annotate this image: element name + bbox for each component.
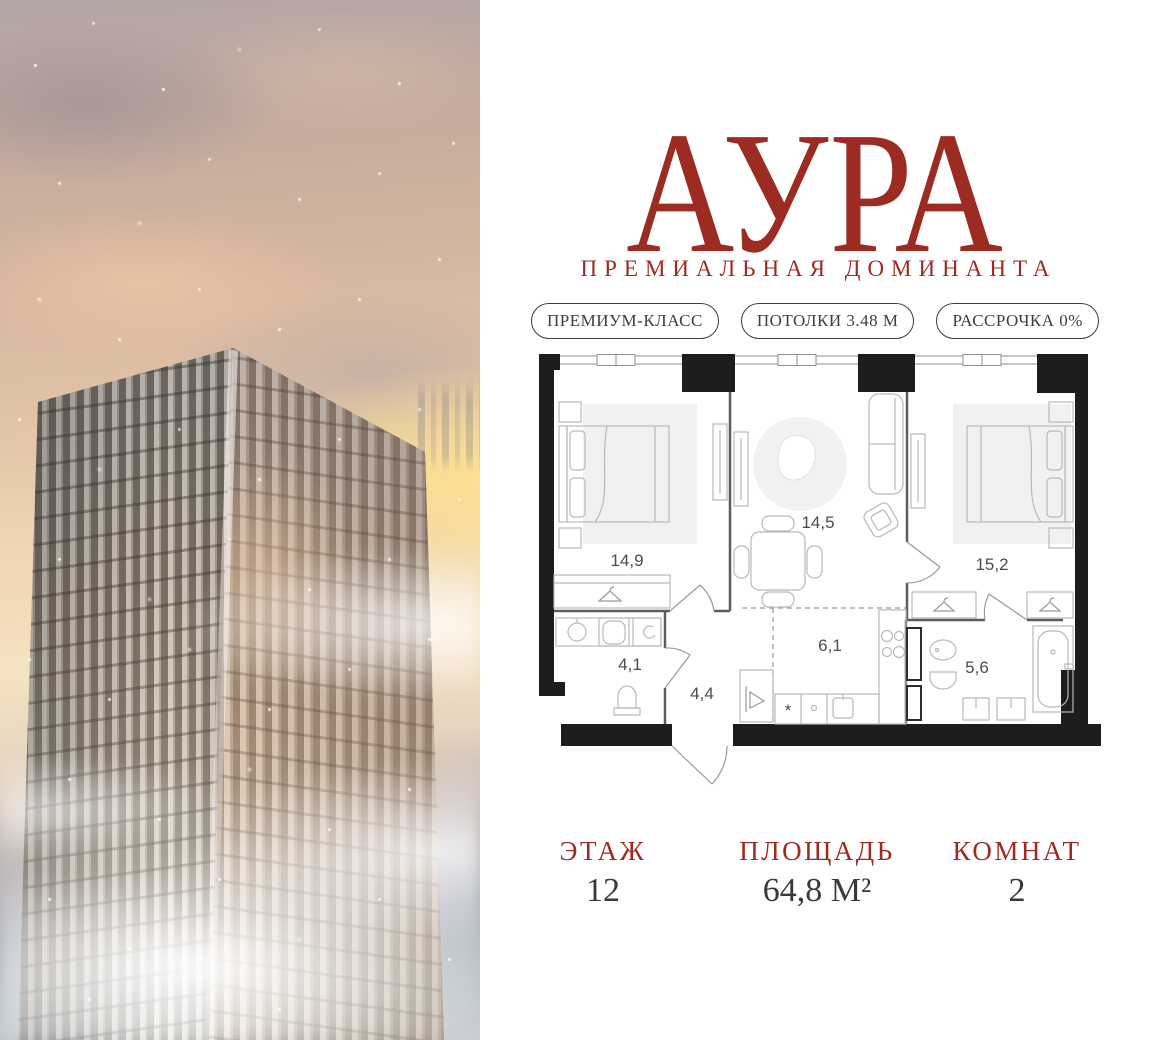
snowflakes xyxy=(0,0,3,3)
toilet xyxy=(930,672,956,689)
window-band xyxy=(554,355,1075,366)
boiler xyxy=(633,618,661,646)
apartment-stats: ЭТАЖ 12 ПЛОЩАДЬ 64,8 М² КОМНАТ 2 xyxy=(480,836,1150,931)
stat-area-label: ПЛОЩАДЬ xyxy=(739,836,894,867)
sink xyxy=(568,618,586,641)
tv-console xyxy=(911,434,925,508)
room-area-label: 4,4 xyxy=(690,684,714,703)
floor-plan: * xyxy=(537,352,1112,796)
kitchen-zone-dashed xyxy=(742,608,906,724)
door-bathroom-2 xyxy=(984,594,1027,620)
badge-premium-class: ПРЕМИУМ-КЛАСС xyxy=(531,303,719,339)
building-photo xyxy=(0,0,480,1040)
bidet xyxy=(930,640,956,660)
wardrobe xyxy=(554,575,670,608)
wardrobe xyxy=(1027,592,1073,618)
cabinet xyxy=(997,698,1025,720)
stat-rooms-value: 2 xyxy=(953,872,1082,910)
bathroom-2-fixtures xyxy=(907,626,1073,720)
room-area-label: 4,1 xyxy=(618,655,642,674)
door-bathroom-1 xyxy=(665,648,690,688)
window-frame-icon xyxy=(963,355,1001,366)
bathroom-1-fixtures xyxy=(556,618,661,715)
window-frame-icon xyxy=(778,355,816,366)
badge-ceiling-height: ПОТОЛКИ 3.48 М xyxy=(741,303,915,339)
dishwasher-icon: * xyxy=(785,701,792,720)
bathtub xyxy=(1033,626,1073,712)
hall-closet xyxy=(740,670,773,722)
room-area-label: 6,1 xyxy=(818,636,842,655)
stove xyxy=(882,631,905,658)
door-bedroom-1 xyxy=(670,585,714,611)
stat-area: ПЛОЩАДЬ 64,8 М² xyxy=(739,836,894,910)
stat-floor-value: 12 xyxy=(560,872,647,910)
hanger-icon xyxy=(1040,598,1060,611)
drop-icon xyxy=(812,706,817,711)
shaft xyxy=(907,628,921,720)
door-bedroom-2 xyxy=(907,542,940,583)
sofa xyxy=(869,394,903,494)
project-tagline: ПРЕМИАЛЬНАЯ ДОМИНАНТА xyxy=(480,256,1150,282)
stat-floor-label: ЭТАЖ xyxy=(560,836,647,867)
cabinet xyxy=(963,698,989,720)
wardrobe xyxy=(912,592,976,618)
toilet xyxy=(614,686,640,715)
room-area-label: 15,2 xyxy=(975,555,1008,574)
stat-rooms-label: КОМНАТ xyxy=(953,836,1082,867)
info-panel: АУРА ПРЕМИАЛЬНАЯ ДОМИНАНТА ПРЕМИУМ-КЛАСС… xyxy=(480,0,1150,1040)
badge-installment: РАССРОЧКА 0% xyxy=(936,303,1098,339)
tv-console xyxy=(713,424,727,500)
room-area-label: 5,6 xyxy=(965,658,989,677)
stat-floor: ЭТАЖ 12 xyxy=(560,836,647,910)
stat-area-value: 64,8 М² xyxy=(739,872,894,910)
clouds-fog xyxy=(0,0,480,1040)
hanger-icon xyxy=(599,587,621,601)
listing-card: АУРА ПРЕМИАЛЬНАЯ ДОМИНАНТА ПРЕМИУМ-КЛАСС… xyxy=(0,0,1150,1040)
tv-console xyxy=(734,432,748,506)
washing-machine xyxy=(599,618,629,646)
project-logo: АУРА xyxy=(480,106,1150,280)
door-entry xyxy=(672,746,727,784)
feature-badges: ПРЕМИУМ-КЛАСС ПОТОЛКИ 3.48 М РАССРОЧКА 0… xyxy=(480,303,1150,339)
room-area-label: 14,5 xyxy=(801,513,834,532)
sink xyxy=(833,694,853,718)
kitchen-fixtures: * xyxy=(740,610,906,724)
room-area-label: 14,9 xyxy=(610,551,643,570)
armchair xyxy=(862,501,900,539)
stat-rooms: КОМНАТ 2 xyxy=(953,836,1082,910)
window-frame-icon xyxy=(597,355,635,366)
hanger-icon xyxy=(934,598,954,611)
